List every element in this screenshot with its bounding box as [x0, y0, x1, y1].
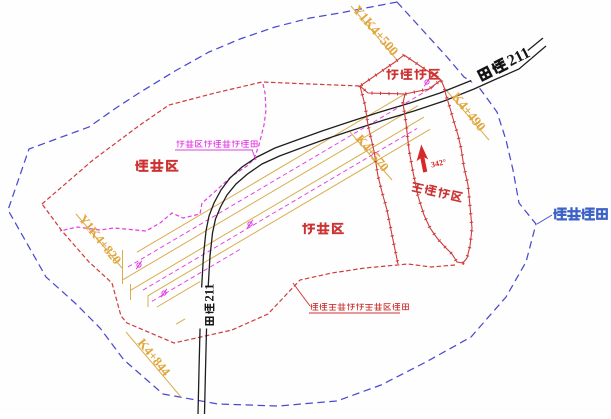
svg-text:211: 211: [203, 283, 217, 301]
